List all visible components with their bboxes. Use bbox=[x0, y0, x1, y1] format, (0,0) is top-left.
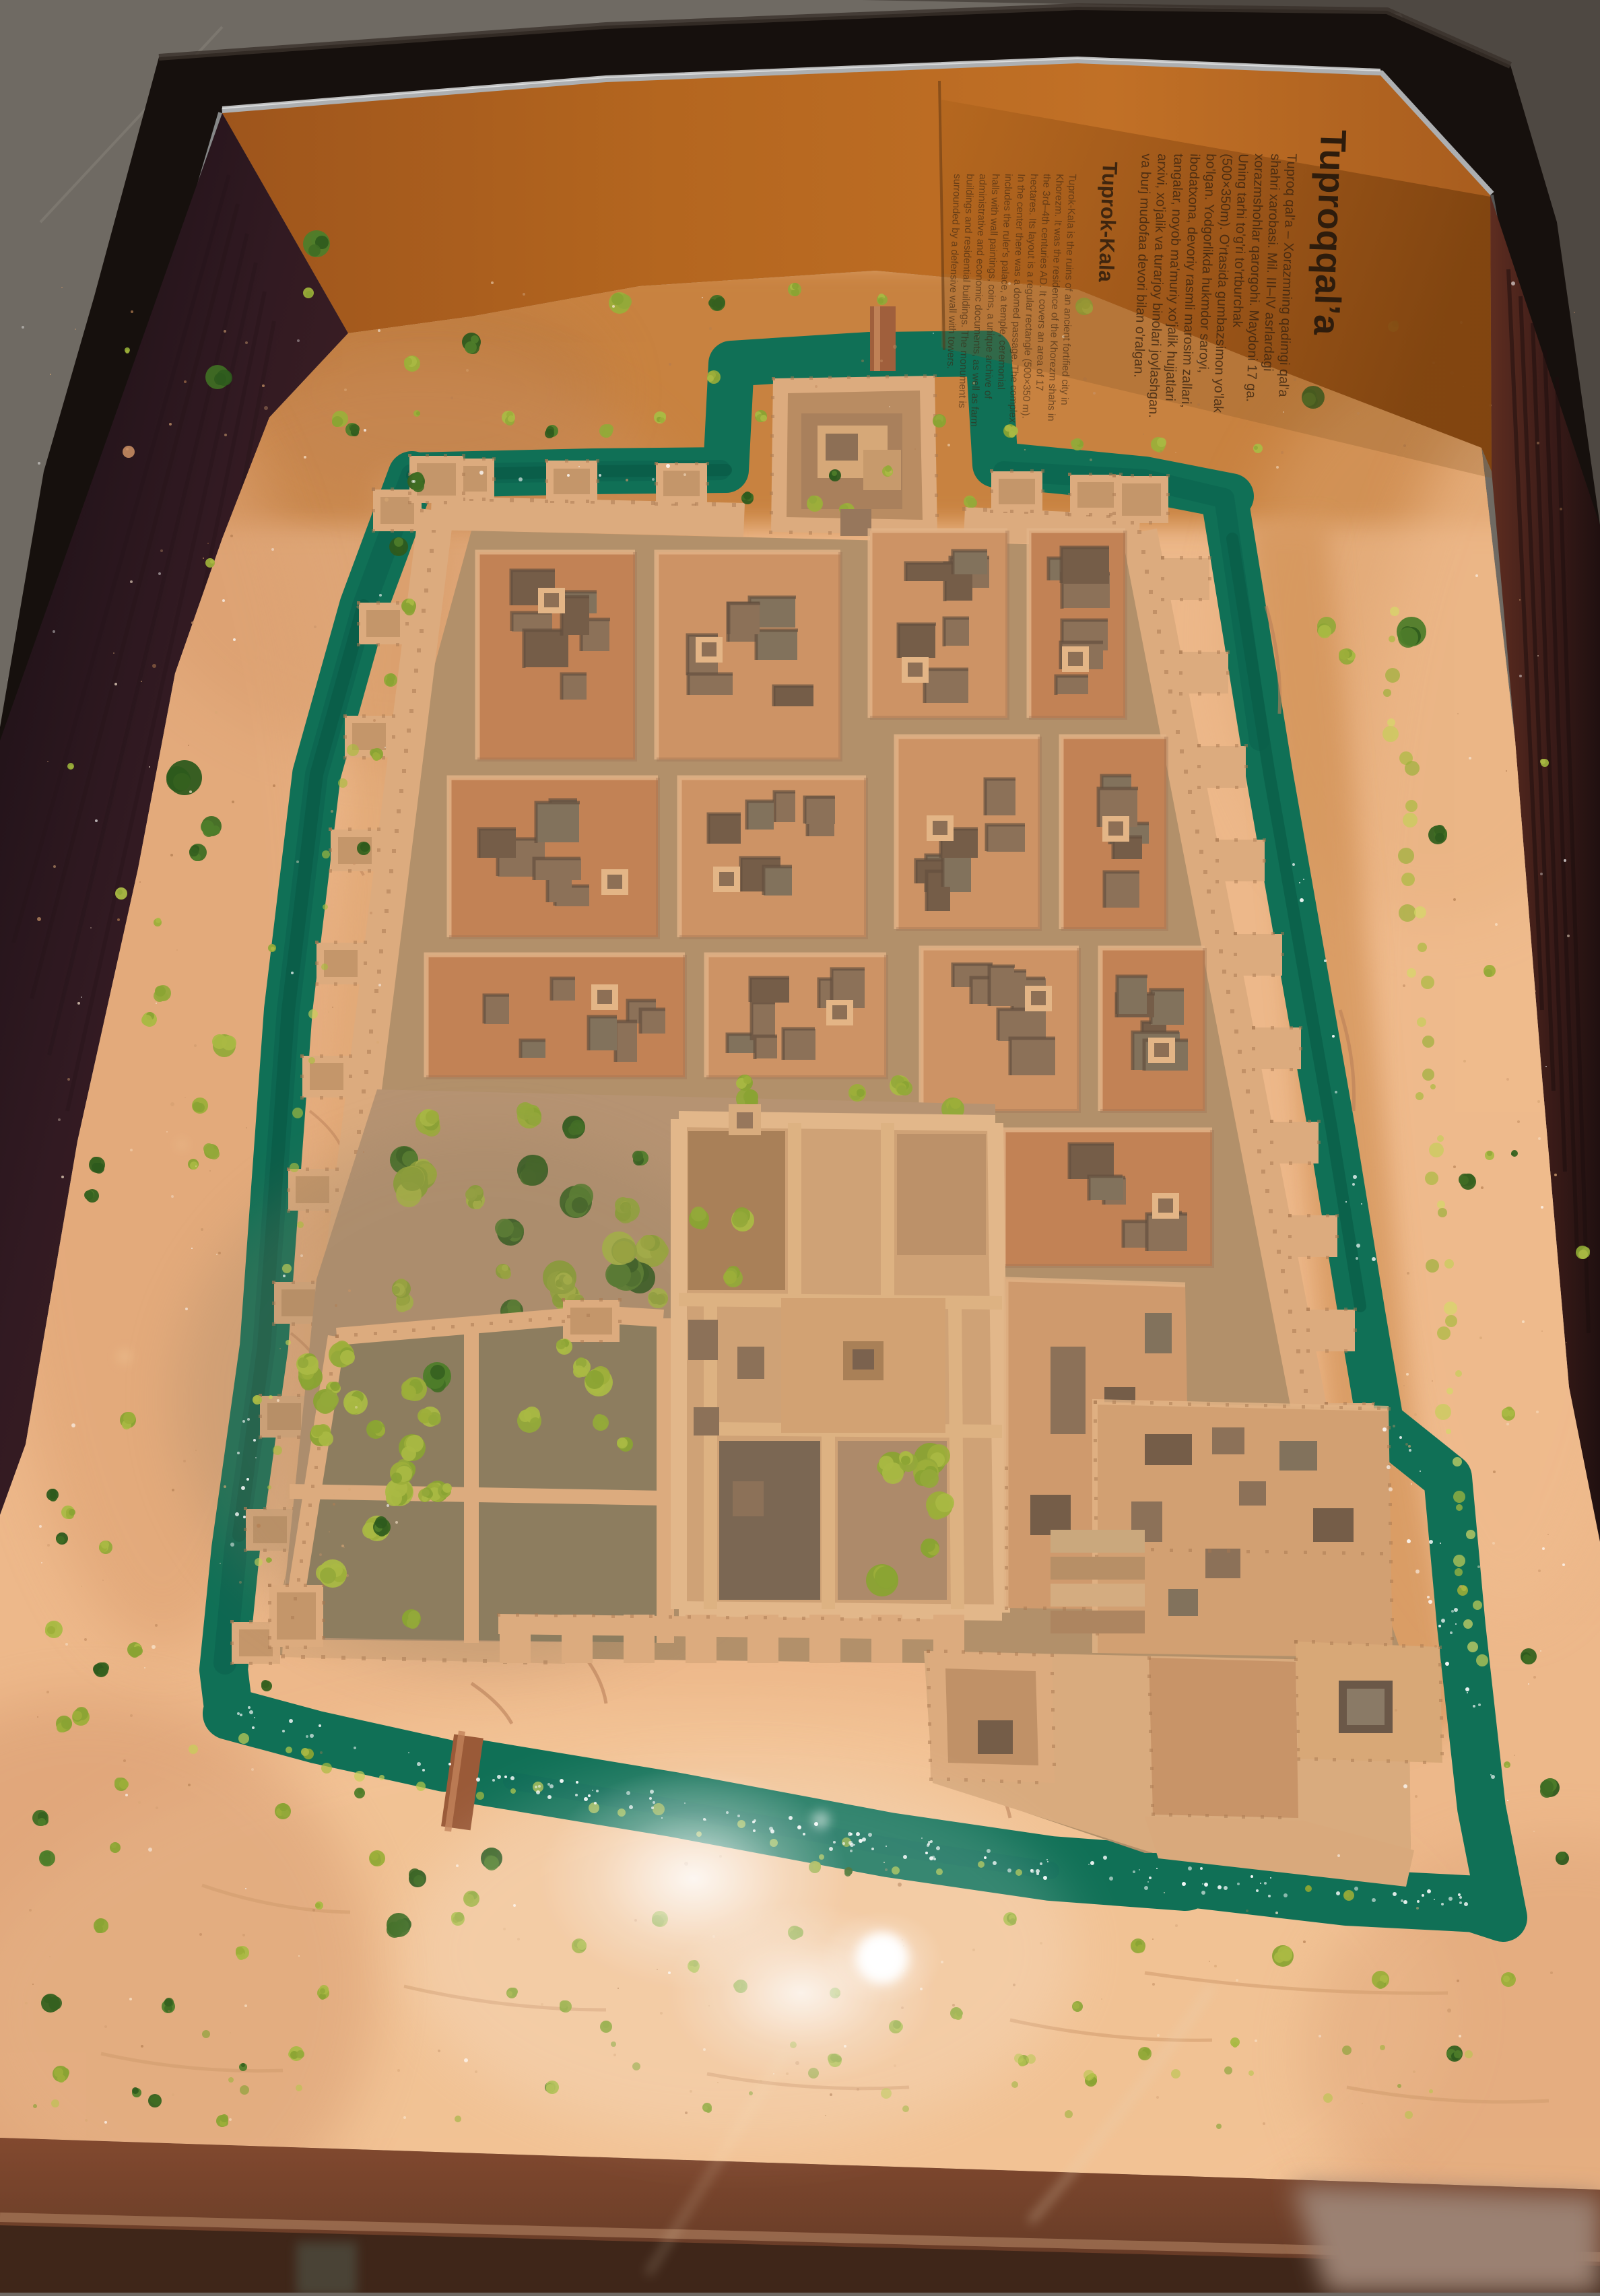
svg-text:Tuprok-Kala: Tuprok-Kala bbox=[1094, 162, 1122, 283]
svg-text:Tuproqqalʼa: Tuproqqalʼa bbox=[1306, 129, 1354, 337]
